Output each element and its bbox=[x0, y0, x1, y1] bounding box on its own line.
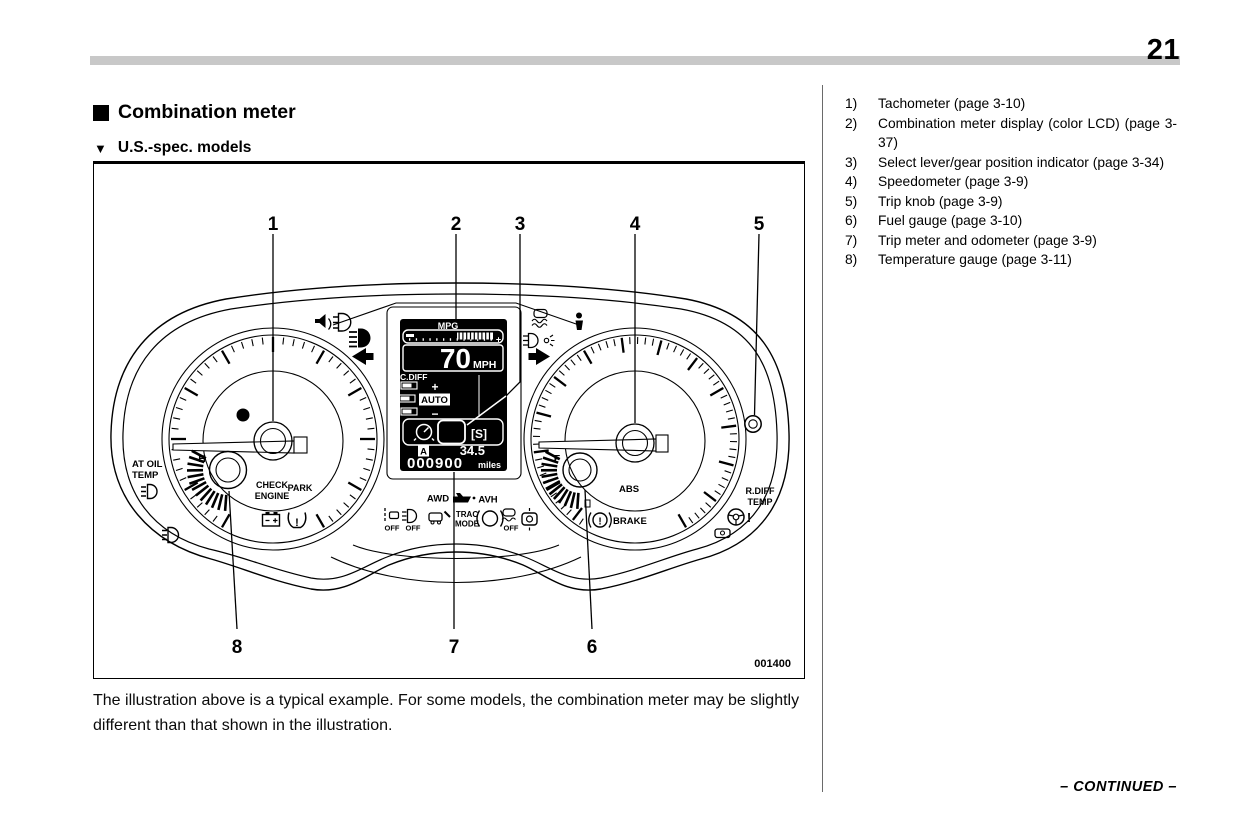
at-oil-temp-label: AT OIL TEMP bbox=[132, 459, 163, 481]
list-item: 6)Fuel gauge (page 3-10) bbox=[845, 211, 1177, 231]
power-steering-warning-icon: ! bbox=[728, 509, 751, 525]
right-turn-signal-icon bbox=[529, 348, 551, 365]
callout-1: 1 bbox=[268, 214, 279, 235]
svg-text:miles: miles bbox=[478, 460, 501, 470]
battery-icon bbox=[263, 512, 280, 526]
left-turn-signal-icon bbox=[352, 348, 374, 365]
vdc-icon bbox=[532, 310, 547, 328]
svg-text:TRAC: TRAC bbox=[456, 510, 478, 519]
svg-text:AUTO: AUTO bbox=[421, 395, 448, 406]
callout-2: 2 bbox=[451, 214, 462, 235]
svg-text:000900: 000900 bbox=[407, 455, 463, 472]
lane-keep-off-icon: OFF bbox=[385, 508, 400, 533]
brake-hold-icon bbox=[477, 511, 503, 527]
fuel-sub-gauge: F bbox=[541, 452, 597, 509]
awd-label: AWD bbox=[427, 494, 449, 505]
brake-warning-icon: ! bbox=[589, 513, 612, 528]
svg-text:70: 70 bbox=[440, 343, 471, 374]
section-title-row: Combination meter bbox=[93, 101, 296, 124]
svg-text:+: + bbox=[431, 380, 438, 394]
svg-text:OFF: OFF bbox=[504, 524, 519, 533]
subsection-title: U.S.-spec. models bbox=[118, 139, 252, 157]
tpms-icon: ! bbox=[288, 513, 306, 530]
trip-knob bbox=[745, 416, 761, 432]
svg-text:34.5: 34.5 bbox=[460, 443, 485, 458]
oil-pressure-icon bbox=[453, 493, 475, 503]
callout-7: 7 bbox=[449, 637, 460, 658]
vdc-off-icon: OFF bbox=[502, 509, 519, 533]
svg-text:!: ! bbox=[747, 510, 751, 525]
rdiff-temp-label: R.DIFF TEMP bbox=[746, 486, 775, 507]
svg-text:MODE: MODE bbox=[455, 520, 480, 529]
manual-page: { "page": { "number": "21", "continued":… bbox=[0, 0, 1241, 827]
svg-text:OFF: OFF bbox=[385, 524, 400, 533]
high-beam-icon bbox=[349, 329, 371, 348]
list-item: 5)Trip knob (page 3-9) bbox=[845, 192, 1177, 212]
headlight-off-icon: OFF bbox=[402, 510, 421, 533]
svg-text:AT OIL: AT OIL bbox=[132, 459, 163, 470]
callout-4: 4 bbox=[630, 214, 641, 235]
figure-code: 001400 bbox=[754, 658, 791, 670]
hill-hold-icon bbox=[522, 508, 537, 531]
svg-text:TEMP: TEMP bbox=[747, 497, 772, 507]
temp-h-label: H bbox=[198, 453, 206, 465]
section-square-marker bbox=[93, 105, 109, 121]
trac-mode-label: TRAC MODE bbox=[455, 510, 480, 529]
car-maintenance-icon bbox=[429, 512, 450, 525]
avh-label: AVH bbox=[478, 495, 497, 506]
callout-8: 8 bbox=[232, 637, 243, 658]
headlight-leveling-icon bbox=[523, 334, 555, 348]
continued-marker: – CONTINUED – bbox=[900, 779, 1177, 795]
cruise-set-dot bbox=[237, 409, 250, 422]
subsection-triangle-marker: ▼ bbox=[94, 141, 107, 156]
subsection-title-row: ▼ U.S.-spec. models bbox=[94, 139, 251, 157]
figure-caption: The illustration above is a typical exam… bbox=[93, 688, 808, 738]
svg-text:R.DIFF: R.DIFF bbox=[746, 486, 775, 496]
header-rule-bar bbox=[90, 56, 1180, 65]
check-engine-label-1: CHECK bbox=[256, 480, 289, 490]
page-number: 21 bbox=[1080, 34, 1180, 67]
svg-text:MPH: MPH bbox=[473, 359, 496, 371]
gear-position: [S] bbox=[471, 427, 487, 441]
list-item: 2)Combination meter display (color LCD) … bbox=[845, 114, 1177, 153]
list-item: 4)Speedometer (page 3-9) bbox=[845, 172, 1177, 192]
fuel-f-label: F bbox=[554, 453, 561, 465]
list-item: 8)Temperature gauge (page 3-11) bbox=[845, 250, 1177, 270]
svg-text:OFF: OFF bbox=[406, 524, 421, 533]
svg-text:+: + bbox=[496, 335, 501, 345]
low-beam-icon bbox=[141, 485, 157, 499]
list-item: 7)Trip meter and odometer (page 3-9) bbox=[845, 231, 1177, 251]
callout-6: 6 bbox=[587, 637, 598, 658]
abs-label: ABS bbox=[619, 484, 639, 495]
park-label: PARK bbox=[288, 483, 313, 493]
section-title: Combination meter bbox=[118, 101, 296, 124]
svg-text:C.DIFF: C.DIFF bbox=[400, 372, 427, 382]
seatbelt-icon bbox=[576, 313, 584, 331]
audio-mute-icon bbox=[315, 314, 331, 330]
svg-text:!: ! bbox=[295, 517, 299, 529]
speedometer-needle bbox=[539, 435, 668, 452]
svg-text:!: ! bbox=[598, 517, 601, 528]
check-engine-label-2: ENGINE bbox=[255, 491, 290, 501]
list-item: 3)Select lever/gear position indicator (… bbox=[845, 153, 1177, 173]
combination-meter-figure: H CHECK ENGINE PARK ! bbox=[93, 161, 805, 679]
callout-3: 3 bbox=[515, 214, 526, 235]
lcd-display: MPG + 70 MPH C.DIFF + AUTO − bbox=[399, 319, 507, 472]
svg-text:TEMP: TEMP bbox=[132, 470, 159, 481]
fog-rear-icon bbox=[162, 528, 179, 543]
list-item: 1)Tachometer (page 3-10) bbox=[845, 94, 1177, 114]
legend-list: 1)Tachometer (page 3-10) 2)Combination m… bbox=[845, 94, 1177, 270]
brake-label: BRAKE bbox=[613, 516, 647, 527]
column-divider bbox=[822, 85, 823, 792]
callout-5: 5 bbox=[754, 214, 765, 235]
